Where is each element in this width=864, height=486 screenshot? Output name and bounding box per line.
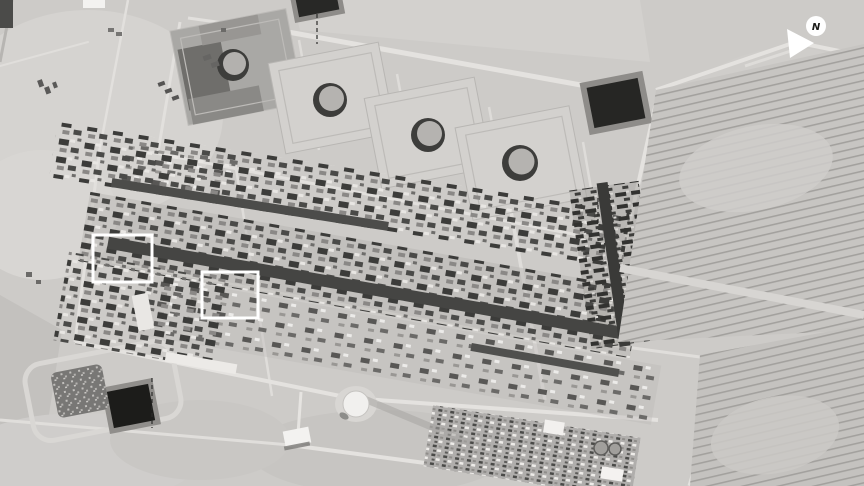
satellite-scene: N <box>0 0 864 486</box>
north-label: N <box>812 22 821 33</box>
desert-structure <box>36 280 41 284</box>
storage-tank-top <box>509 149 535 175</box>
desert-structure <box>108 28 114 32</box>
storage-tank-top <box>417 121 442 146</box>
storage-tank-top <box>319 86 344 111</box>
spherical-tank <box>343 391 369 417</box>
equipment-pad-texture <box>50 363 110 418</box>
desert-structure <box>221 28 226 32</box>
desert-structure <box>26 272 32 277</box>
pond <box>583 74 649 131</box>
corner-structure <box>0 0 13 28</box>
small-tank <box>594 441 608 455</box>
pond <box>104 381 158 431</box>
small-tank <box>609 443 621 455</box>
satellite-screenshot: N <box>0 0 864 486</box>
corner-structure <box>83 0 105 8</box>
desert-structure <box>116 32 122 36</box>
storage-tank-top <box>223 52 246 75</box>
